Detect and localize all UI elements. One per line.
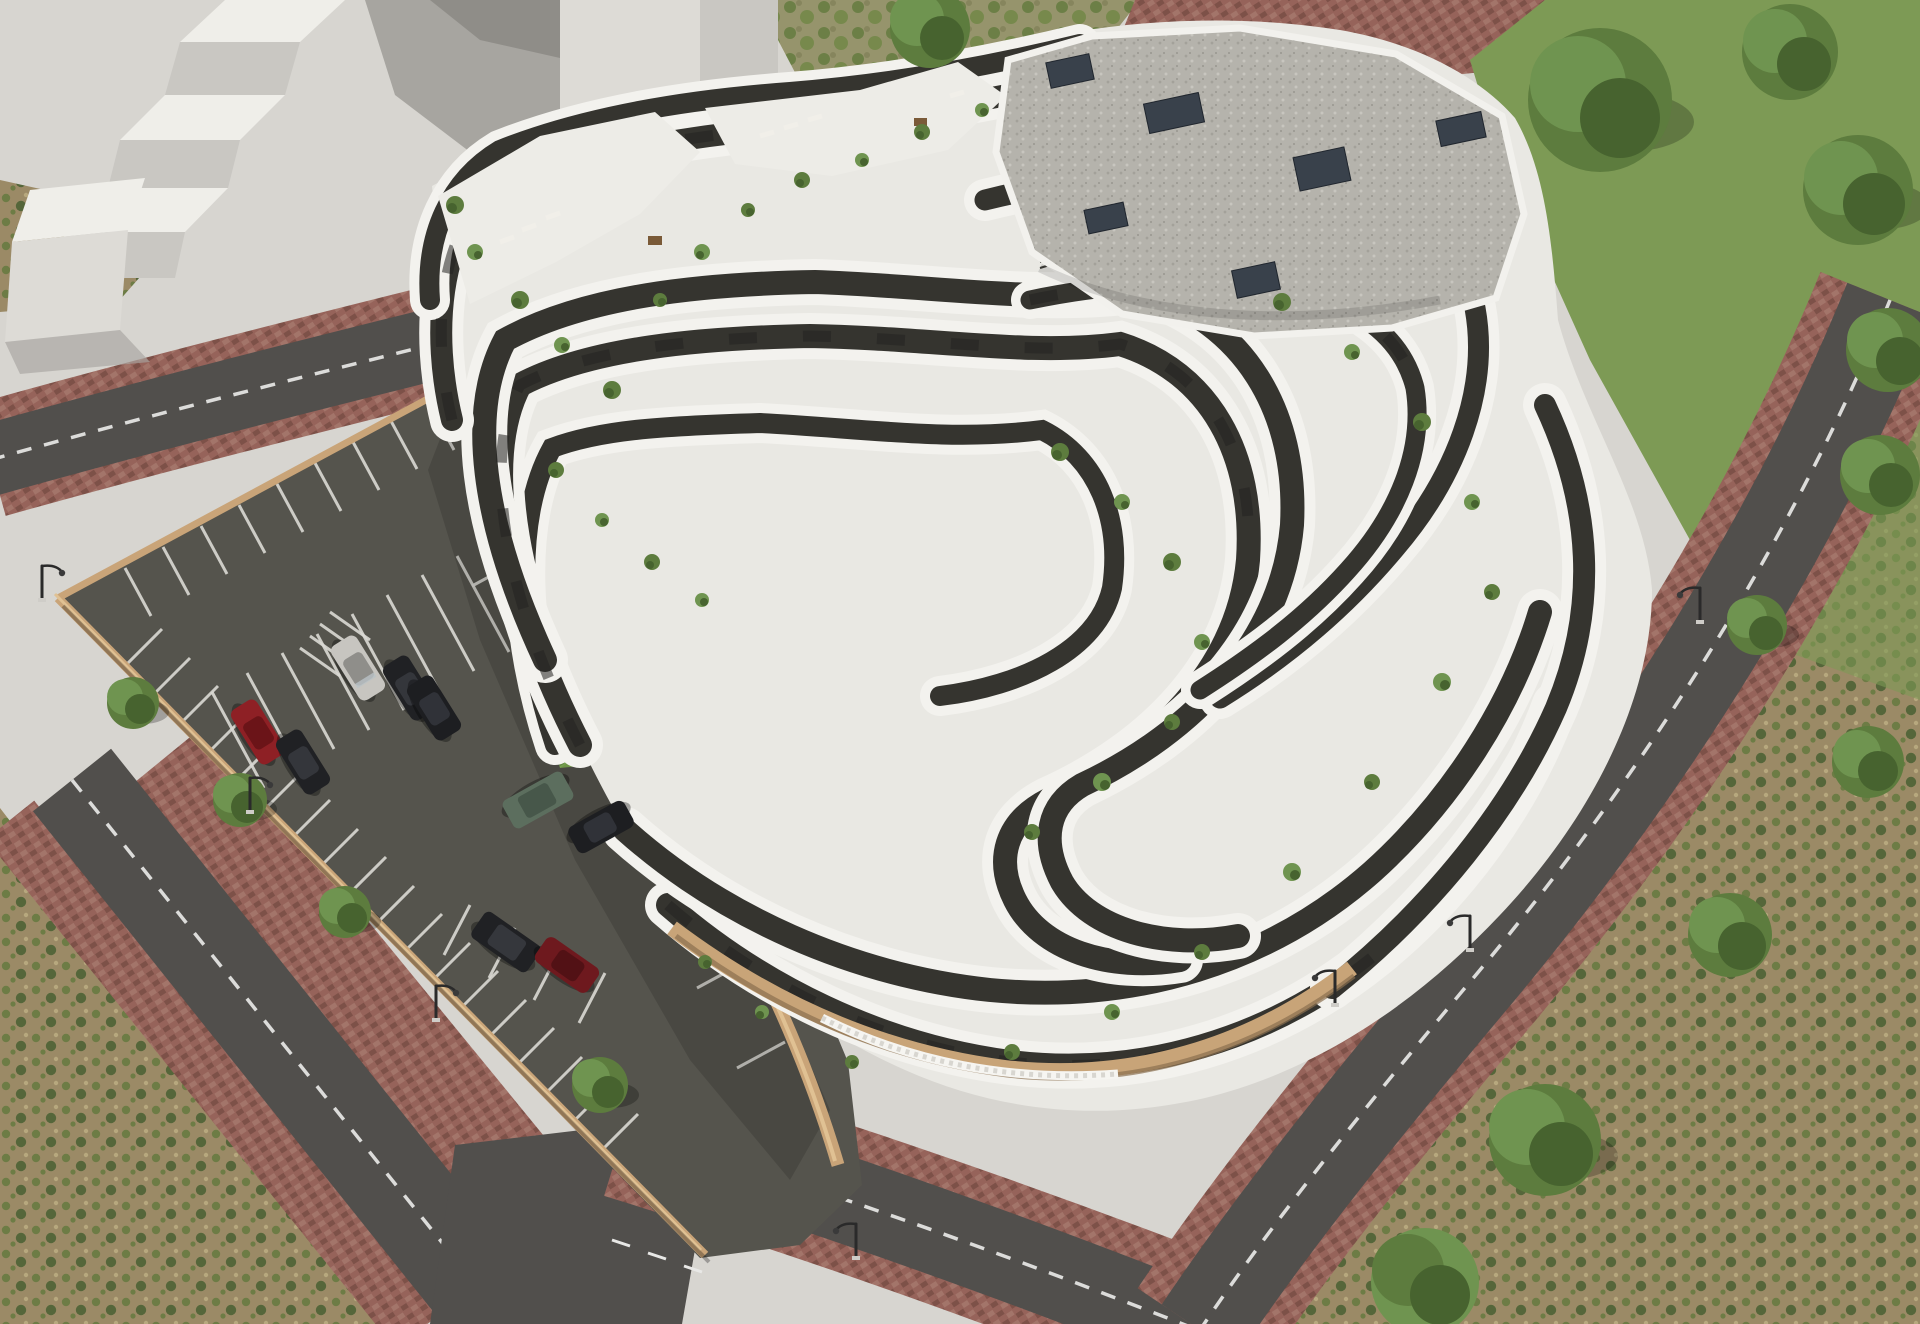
terrace-plants-part-part xyxy=(1440,680,1450,690)
terrace-plants-part-part xyxy=(1195,951,1203,959)
terrace-plants-part xyxy=(653,293,667,307)
tree-part xyxy=(1718,922,1766,970)
street-lamp-part xyxy=(246,810,254,814)
terrace-plants-part-part xyxy=(1121,501,1129,509)
tree-part xyxy=(125,694,155,724)
terrace-plants-part xyxy=(694,244,710,260)
terrace-plants-part xyxy=(914,124,930,140)
tree-part xyxy=(592,1076,624,1108)
massing-block-low-part xyxy=(5,230,128,342)
terrace-plants-part xyxy=(1413,413,1431,431)
street-lamp-part xyxy=(38,598,46,602)
terrace-plants-part-part xyxy=(1485,591,1493,599)
terrace-plants-part xyxy=(548,462,564,478)
terrace-plants-part-part xyxy=(600,518,608,526)
terrace-plants-part-part xyxy=(550,469,558,477)
terrace-plants-part xyxy=(1163,553,1181,571)
tree-part xyxy=(1529,1122,1593,1186)
terrace-plants-part-part xyxy=(1351,351,1359,359)
tree-part xyxy=(1843,173,1905,235)
terrace-plants-part xyxy=(1051,443,1069,461)
terrace-plants-part xyxy=(1344,344,1360,360)
terrace-plants-part xyxy=(1194,634,1210,650)
terrace-plants-part xyxy=(1283,863,1301,881)
tree-part xyxy=(1580,78,1660,158)
terrace-plants-part-part xyxy=(447,203,457,213)
terrace-plants-part-part xyxy=(696,251,704,259)
terrace-plants-part xyxy=(1484,584,1500,600)
tree-part xyxy=(1858,751,1898,791)
street-lamp-part xyxy=(833,1228,839,1234)
terrace-plants-part xyxy=(755,1005,769,1019)
terrace-plants-part xyxy=(603,381,621,399)
street-lamp-part xyxy=(1466,948,1474,952)
tree xyxy=(1840,435,1920,515)
street-lamp-part xyxy=(1696,620,1704,624)
terrace-plants-part xyxy=(1104,1004,1120,1020)
tree-part xyxy=(1749,616,1783,650)
terrace-plants-part xyxy=(1024,824,1040,840)
terrace-plants-part-part xyxy=(1052,450,1062,460)
street-lamp-part xyxy=(1312,975,1318,981)
terrace-plants-part-part xyxy=(916,131,924,139)
tree-part xyxy=(1410,1265,1470,1324)
terrace-plants-part xyxy=(1114,494,1130,510)
terrace-plants-part-part xyxy=(1165,721,1173,729)
street-lamp-part xyxy=(1677,592,1683,598)
street-lamp-part xyxy=(453,990,459,996)
terrace-plants-part xyxy=(1004,1044,1020,1060)
terrace-plants-part-part xyxy=(1111,1010,1119,1018)
terrace-table xyxy=(648,236,662,245)
terrace-plants-part xyxy=(1194,944,1210,960)
aerial-render xyxy=(0,0,1920,1324)
terrace-plants-part-part xyxy=(512,298,522,308)
terrace-plants-part xyxy=(554,337,570,353)
terrace-plants-part xyxy=(644,554,660,570)
tree-part xyxy=(337,903,367,933)
terrace-plants-part xyxy=(467,244,483,260)
street-lamp-part xyxy=(267,782,273,788)
terrace-plants-part-part xyxy=(1201,640,1209,648)
terrace-plants-part xyxy=(1464,494,1480,510)
terrace-plants-part xyxy=(1364,774,1380,790)
street-lamp-part xyxy=(1331,1003,1339,1007)
terrace-plants-part xyxy=(845,1055,859,1069)
terrace-plants-part-part xyxy=(646,561,654,569)
tree-part xyxy=(920,16,964,60)
street-lamp-part xyxy=(1447,920,1453,926)
terrace-plants-part xyxy=(855,153,869,167)
terrace-plants-part xyxy=(1093,773,1111,791)
terrace-plants-part xyxy=(1164,714,1180,730)
terrace-plants-part xyxy=(794,172,810,188)
terrace-plants-part xyxy=(698,955,712,969)
terrace-plants-part-part xyxy=(1164,560,1174,570)
terrace-plants-part-part xyxy=(700,598,708,606)
terrace-plants-part-part xyxy=(1414,420,1424,430)
tree xyxy=(1688,893,1772,977)
terrace-plants-part xyxy=(741,203,755,217)
terrace-plants-part-part xyxy=(658,298,666,306)
tree-part xyxy=(1777,37,1831,91)
terrace-plants-part xyxy=(975,103,989,117)
terrace-plants-part xyxy=(695,593,709,607)
terrace-plants-part-part xyxy=(1274,300,1284,310)
street-lamp-part xyxy=(59,570,65,576)
terrace-plants-part-part xyxy=(561,343,569,351)
terrace-plants-part-part xyxy=(703,960,711,968)
terrace-plants-part-part xyxy=(1365,781,1373,789)
terrace-plants-part-part xyxy=(850,1060,858,1068)
terrace-plants-part-part xyxy=(604,388,614,398)
tree-part xyxy=(231,791,263,823)
tree xyxy=(1832,726,1904,798)
terrace-plants-part xyxy=(446,196,464,214)
terrace-plants-part-part xyxy=(1005,1051,1013,1059)
street-lamp-part xyxy=(432,1018,440,1022)
terrace-plants-part-part xyxy=(1025,831,1033,839)
terrace-plants-part-part xyxy=(980,108,988,116)
terrace-plants-part-part xyxy=(860,158,868,166)
tree-part xyxy=(1869,463,1913,507)
render-canvas xyxy=(0,0,1920,1324)
terrace-plants-part xyxy=(595,513,609,527)
massing-steps-part xyxy=(165,42,300,95)
street-lamp-part xyxy=(852,1256,860,1260)
tree xyxy=(1742,4,1838,100)
terrace-plants-part xyxy=(1273,293,1291,311)
terrace-plants-part-part xyxy=(474,251,482,259)
terrace-plants-part xyxy=(1433,673,1451,691)
terrace-plants-part-part xyxy=(796,179,804,187)
terrace-plants-part-part xyxy=(1100,780,1110,790)
terrace-plants-part-part xyxy=(1290,870,1300,880)
terrace-plants-part-part xyxy=(746,208,754,216)
terrace-plants-part-part xyxy=(1471,500,1479,508)
terrace-plants-part-part xyxy=(756,1011,764,1019)
terrace-plants-part xyxy=(511,291,529,309)
